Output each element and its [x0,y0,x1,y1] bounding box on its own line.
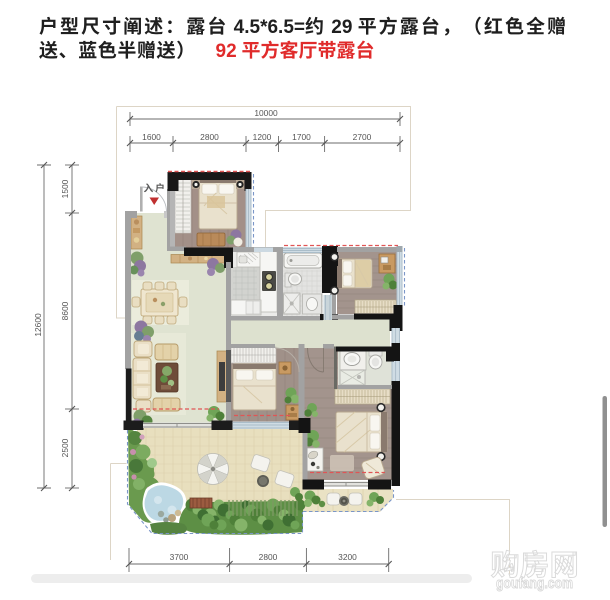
svg-text:10000: 10000 [254,108,278,118]
svg-text:1500: 1500 [60,179,70,198]
svg-text:4.5*6.5=: 4.5*6.5= [228,17,305,38]
svg-text:29: 29 [331,17,352,38]
svg-text:3200: 3200 [338,552,357,562]
svg-text:1200: 1200 [253,132,272,142]
svg-text:12600: 12600 [33,313,43,337]
svg-text:2500: 2500 [60,438,70,457]
svg-text:8600: 8600 [60,301,70,320]
svg-text:2700: 2700 [353,132,372,142]
svg-text:92: 92 [216,41,237,62]
svg-text:1700: 1700 [292,132,311,142]
svg-text:2800: 2800 [259,552,278,562]
svg-text:goufang.com: goufang.com [496,576,573,592]
svg-text:1600: 1600 [142,132,161,142]
svg-text:2800: 2800 [200,132,219,142]
svg-text:3700: 3700 [170,552,189,562]
